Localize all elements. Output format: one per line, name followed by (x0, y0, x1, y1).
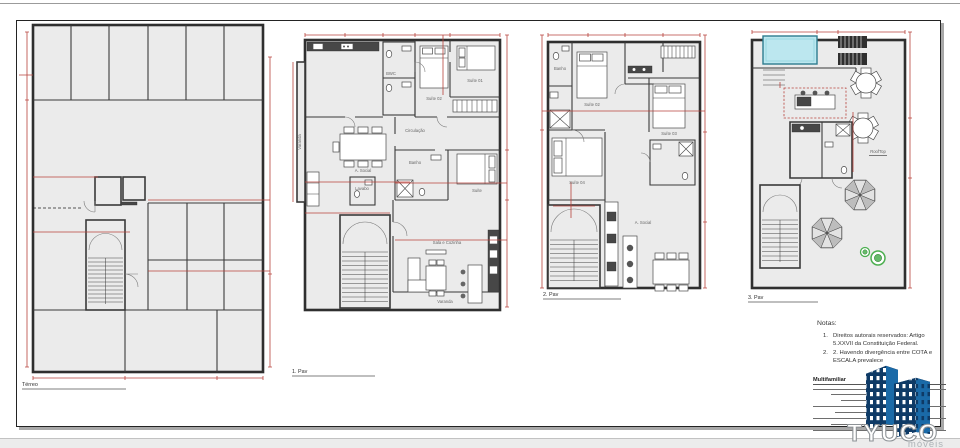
room-label: Lavabo (355, 186, 369, 191)
page-background-strip (0, 438, 960, 448)
plan-caption: Térreo (22, 382, 126, 389)
bed-icon-suite02 (420, 46, 448, 88)
room-label: BWC (386, 71, 396, 76)
room-label: Varanda (297, 134, 302, 150)
room-label: Banho (554, 66, 567, 71)
room-label: A. Social (635, 220, 652, 225)
room-label: A. Social (355, 168, 372, 173)
note-number: 2. (823, 350, 833, 365)
room-label: Suíte 01 (467, 78, 483, 83)
page-top-edge (0, 3, 960, 4)
plan-terreo-drawing: Térreo (14, 22, 284, 396)
kitchen-bath-block (790, 122, 852, 188)
room-label: Suíte 02 (584, 102, 600, 107)
note-text: Direitos autorais reservados: Artigo 5.X… (833, 333, 944, 348)
plan-rooftop-drawing: RoofTop 3. Pav (736, 22, 915, 305)
closet-icon (661, 46, 695, 58)
room-label: Banho (409, 160, 422, 165)
logo-tagline-text: móveis (908, 439, 944, 448)
room-label: Varanda (437, 299, 453, 304)
room-label: Sala e Cozinha (433, 240, 462, 245)
bed-icon-suite (457, 154, 497, 184)
plan-caption: 1. Pav (292, 369, 375, 376)
plan-pav1-drawing: Varanda BWC Suíte 02 Suíte 01 A. Social … (285, 22, 530, 380)
note-number: 1. (823, 333, 833, 348)
stairs-icon (548, 205, 600, 288)
plan-label: 2. Pav (543, 292, 559, 298)
room-label: Suíte (472, 188, 482, 193)
plan-label: 3. Pav (748, 295, 764, 301)
bar-counter (623, 236, 637, 288)
notes-title: Notas: (817, 320, 944, 327)
stairs-icon (760, 185, 800, 268)
stairs-icon (340, 215, 390, 308)
bed-icon-suite03 (653, 84, 685, 128)
kitchen-counter (605, 202, 618, 286)
bed-icon-suite02 (577, 52, 607, 98)
kitchen-counter (307, 42, 379, 51)
room-label: Circulação (405, 128, 425, 133)
room-label: Suíte 02 (426, 96, 442, 101)
room-label: RoofTop (870, 149, 886, 154)
company-logo: TYUCO móveis (836, 350, 950, 448)
plan-caption: 2. Pav (543, 292, 621, 299)
plan-caption: 3. Pav (748, 295, 818, 302)
note-item: 1. Direitos autorais reservados: Artigo … (823, 333, 944, 348)
bed-icon-suite04 (552, 138, 602, 176)
plan-label: Térreo (22, 382, 38, 388)
room-label: Suíte 04 (569, 180, 585, 185)
plan-pav2-drawing: Banho Suíte 02 Suíte 03 Suíte 04 A. Soci… (533, 22, 715, 305)
plan-label: 1. Pav (292, 369, 308, 375)
dining-table-icon (653, 253, 689, 291)
room-label: Suíte 03 (661, 131, 677, 136)
